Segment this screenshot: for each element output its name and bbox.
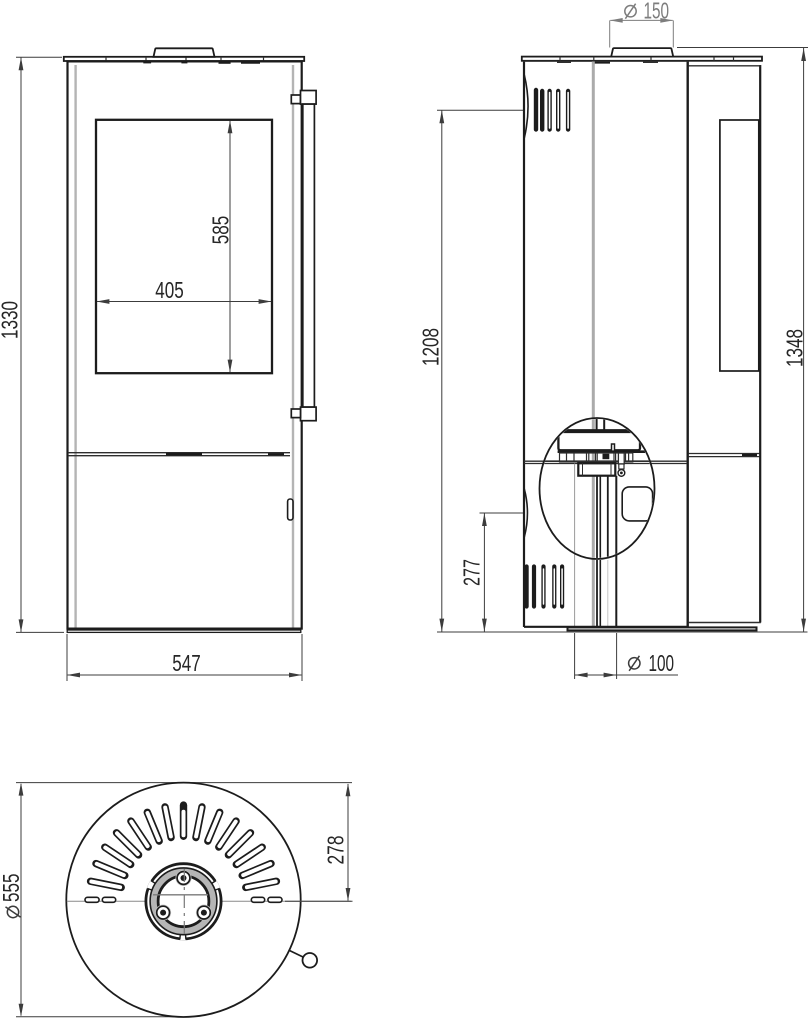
svg-text:1208: 1208 [418, 328, 444, 366]
svg-text:547: 547 [172, 650, 201, 676]
svg-text:100: 100 [649, 650, 675, 676]
svg-text:405: 405 [155, 277, 184, 303]
svg-text:150: 150 [644, 0, 670, 24]
svg-text:1348: 1348 [782, 329, 808, 367]
svg-text:555: 555 [0, 874, 24, 903]
svg-text:277: 277 [459, 559, 485, 586]
svg-text:1330: 1330 [0, 301, 23, 339]
svg-text:278: 278 [323, 836, 349, 865]
svg-text:585: 585 [208, 216, 234, 245]
